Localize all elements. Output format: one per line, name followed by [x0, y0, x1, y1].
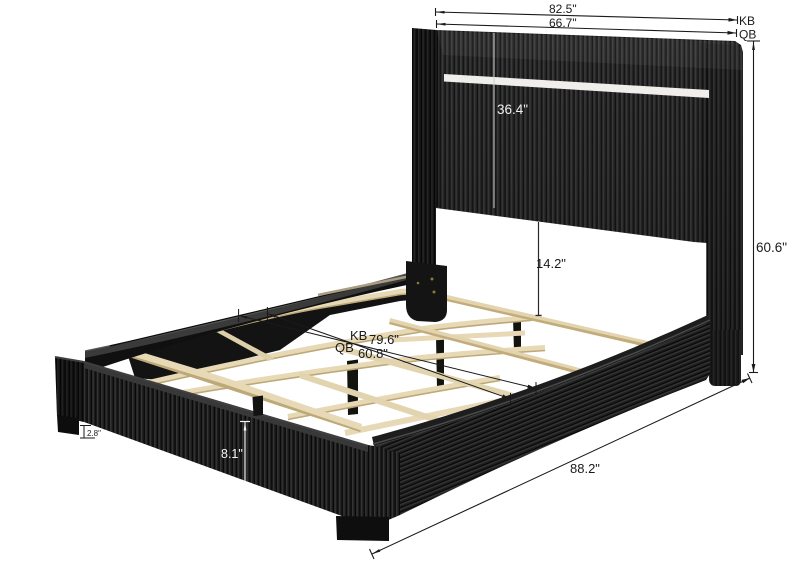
svg-text:8.1": 8.1"	[221, 447, 243, 461]
svg-text:QB: QB	[335, 340, 354, 355]
svg-text:60.6": 60.6"	[756, 240, 787, 255]
svg-text:14.2": 14.2"	[536, 256, 566, 271]
svg-text:79.6": 79.6"	[369, 332, 399, 347]
svg-text:88.2": 88.2"	[570, 461, 600, 476]
svg-text:2.8": 2.8"	[87, 429, 101, 438]
svg-text:82.5": 82.5"	[549, 2, 577, 16]
svg-text:KB: KB	[739, 14, 755, 28]
svg-text:36.4": 36.4"	[497, 102, 528, 117]
svg-text:66.7": 66.7"	[549, 16, 577, 30]
svg-text:60.8": 60.8"	[358, 346, 388, 361]
svg-text:QB: QB	[739, 28, 756, 42]
